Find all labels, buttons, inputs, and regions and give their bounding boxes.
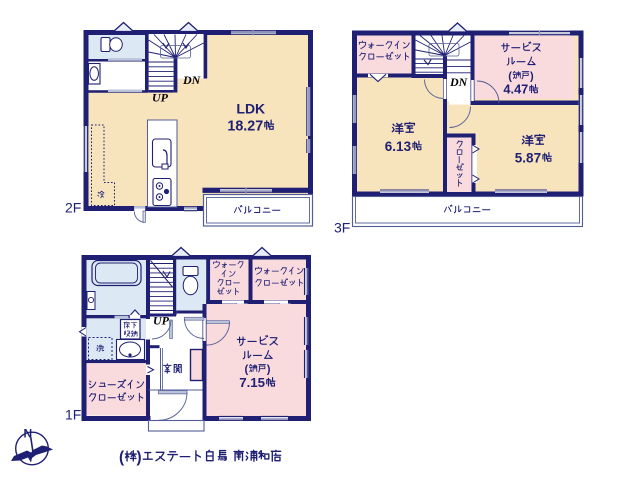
svg-text:3F: 3F (334, 220, 350, 236)
svg-text:LDK: LDK (236, 101, 265, 117)
svg-text:(: ( (245, 364, 249, 376)
svg-text:5.87: 5.87 (515, 150, 541, 165)
svg-text:(: ( (508, 70, 512, 82)
svg-text:2F: 2F (65, 200, 81, 216)
svg-text:DN: DN (449, 75, 469, 89)
svg-text:4.47: 4.47 (503, 82, 528, 97)
svg-text:): ) (137, 449, 142, 466)
svg-text:UP: UP (152, 91, 169, 105)
svg-text:(: ( (119, 449, 125, 466)
svg-text:18.27: 18.27 (227, 118, 263, 134)
svg-text:1F: 1F (65, 407, 81, 423)
svg-text:): ) (267, 364, 271, 376)
svg-text:): ) (530, 70, 534, 82)
svg-text:DN: DN (182, 73, 202, 87)
svg-text:7.15: 7.15 (239, 375, 265, 390)
svg-text:6.13: 6.13 (385, 139, 412, 154)
